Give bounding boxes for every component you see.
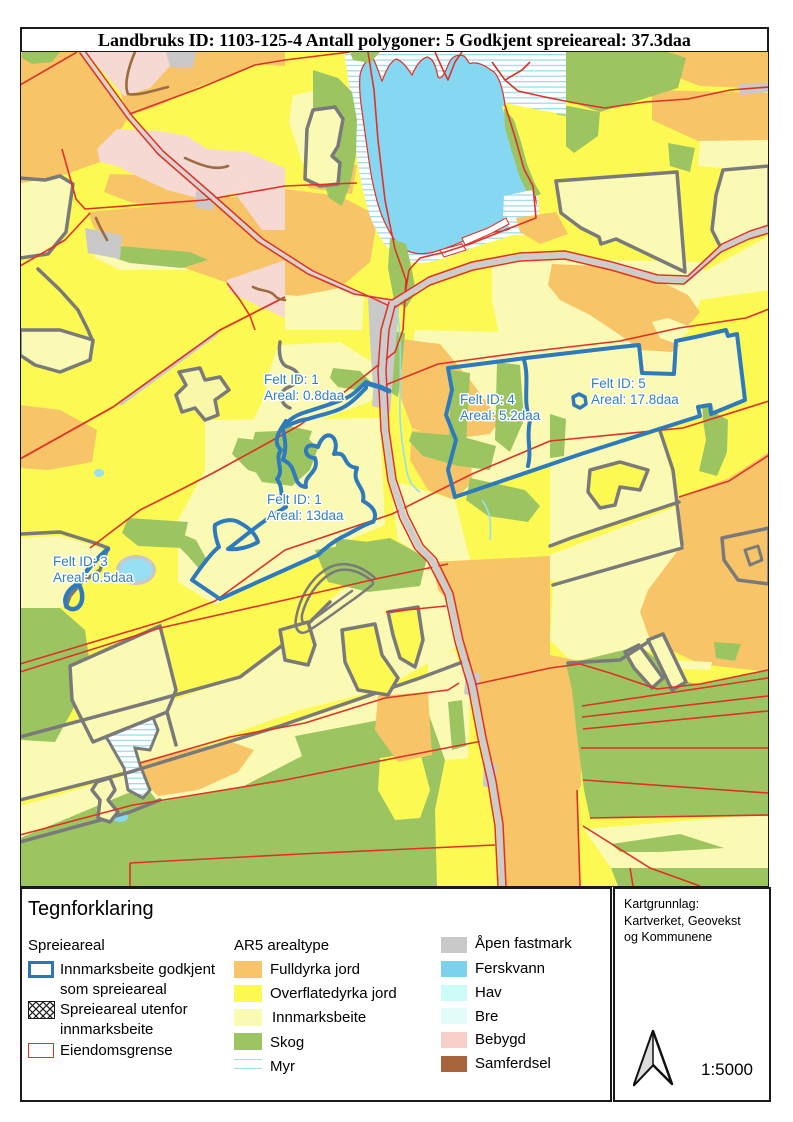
svg-text:Areal: 0.8daa: Areal: 0.8daa (264, 388, 345, 403)
svg-text:Felt ID: 4: Felt ID: 4 (460, 392, 515, 407)
svg-text:Areal: 0.5daa: Areal: 0.5daa (53, 570, 134, 585)
svg-text:Felt ID: 3: Felt ID: 3 (53, 554, 108, 569)
svg-text:Felt ID: 1: Felt ID: 1 (264, 372, 319, 387)
svg-text:Felt ID: 1: Felt ID: 1 (267, 492, 322, 507)
svg-text:Areal: 17.8daa: Areal: 17.8daa (591, 392, 679, 407)
svg-text:Areal: 5.2daa: Areal: 5.2daa (460, 408, 541, 423)
svg-text:Areal: 13daa: Areal: 13daa (267, 508, 344, 523)
svg-text:Felt ID: 5: Felt ID: 5 (591, 376, 646, 391)
